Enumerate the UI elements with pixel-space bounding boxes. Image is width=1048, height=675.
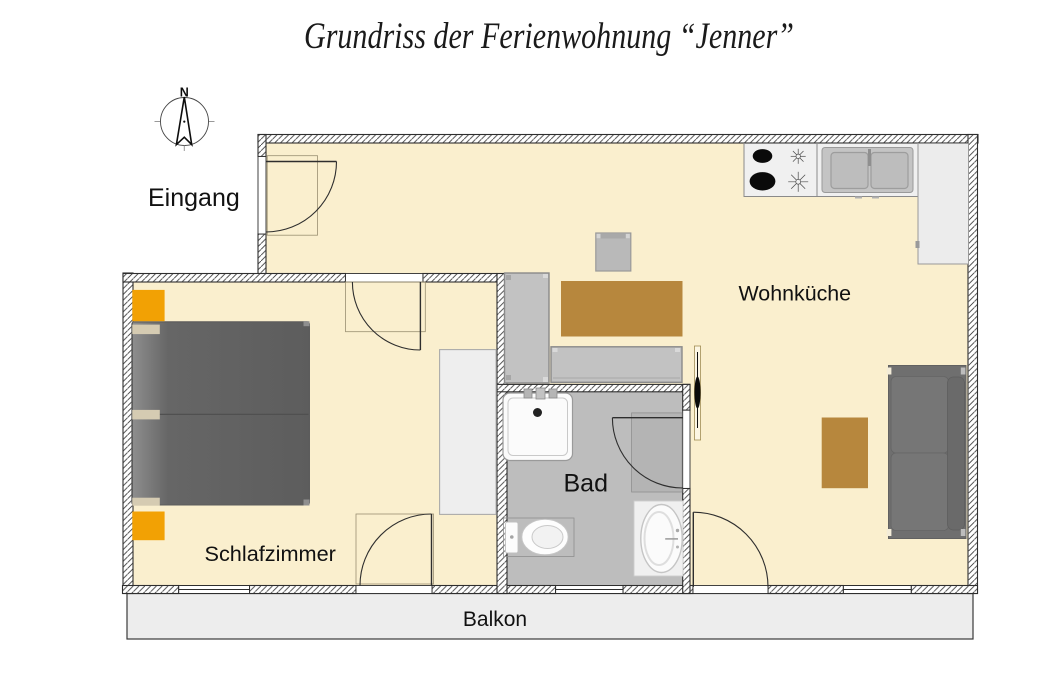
svg-text:Bad: Bad	[564, 470, 608, 498]
svg-text:Eingang: Eingang	[148, 184, 240, 212]
svg-text:Schlafzimmer: Schlafzimmer	[205, 541, 336, 566]
svg-text:Grundriss der Ferienwohnung “J: Grundriss der Ferienwohnung “Jenner”	[304, 16, 794, 57]
svg-text:N: N	[180, 86, 189, 100]
svg-text:Wohnküche: Wohnküche	[739, 282, 852, 306]
svg-text:Balkon: Balkon	[463, 608, 527, 631]
